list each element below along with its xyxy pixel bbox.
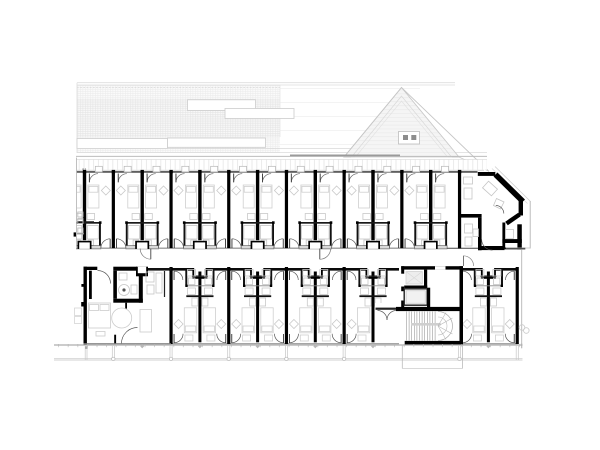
svg-text:4.1: 4.1 [82,167,87,171]
